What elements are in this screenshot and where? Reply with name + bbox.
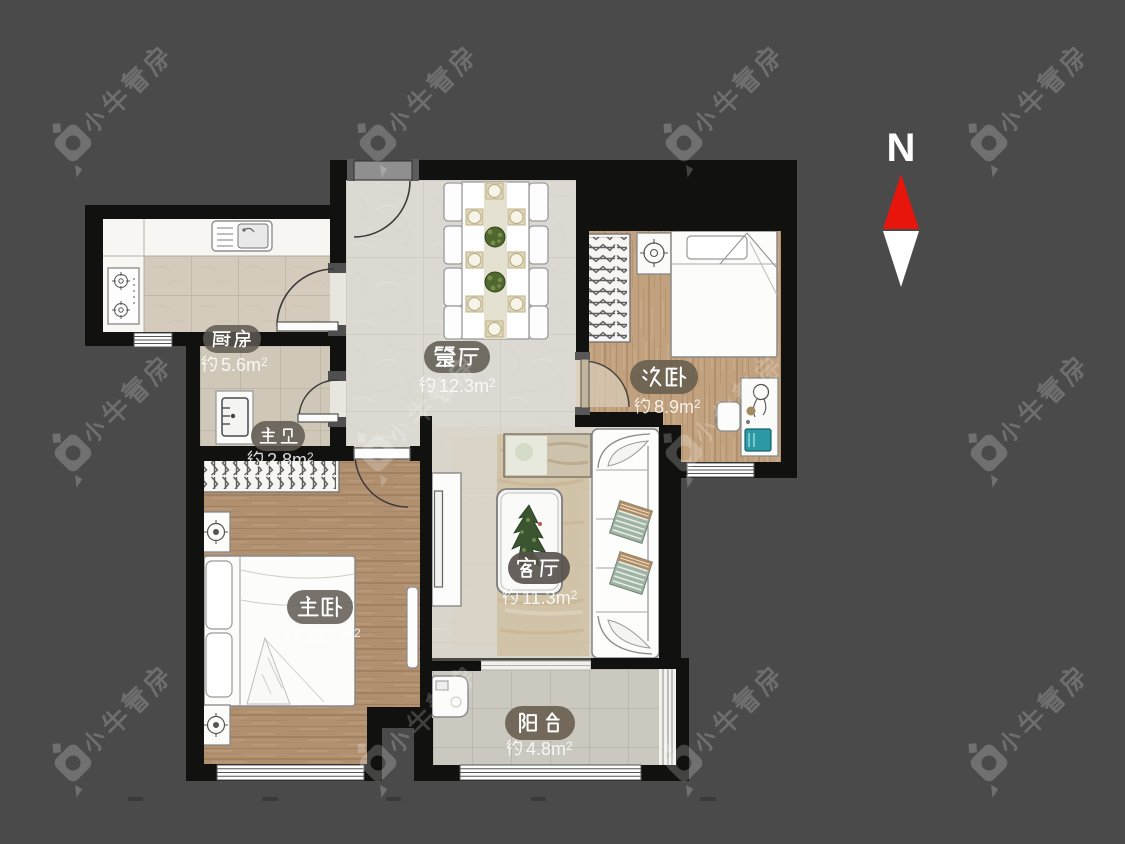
svg-text:8.9m2: 8.9m2 (654, 397, 701, 417)
svg-text:13.7m2: 13.7m2 (304, 626, 361, 646)
svg-text:2.8m2: 2.8m2 (267, 450, 314, 470)
svg-text:N: N (887, 126, 916, 170)
svg-text:4.8m2: 4.8m2 (526, 739, 573, 759)
svg-text:5.6m2: 5.6m2 (221, 355, 268, 375)
svg-text:11.3m2: 11.3m2 (522, 588, 578, 608)
